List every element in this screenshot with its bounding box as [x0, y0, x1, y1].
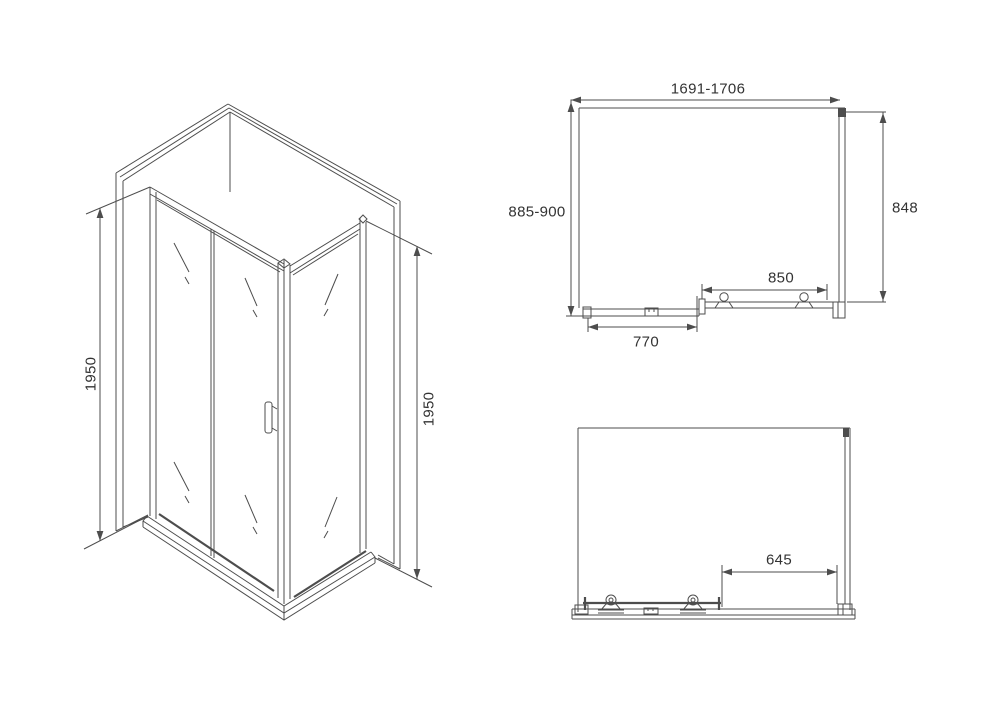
- isometric-view: [84, 104, 432, 620]
- dim-label-iso-right-height: 1950: [421, 391, 438, 428]
- front-dim-645: [722, 565, 837, 607]
- front-base: [572, 604, 855, 619]
- door-handle: [265, 402, 277, 433]
- iso-tray: [143, 514, 375, 620]
- plan-roller-left: [713, 293, 735, 308]
- iso-door-face: [150, 187, 290, 604]
- plan-view: [566, 97, 886, 332]
- plan-roller-right: [793, 293, 815, 308]
- front-view: [572, 428, 855, 619]
- dim-label-iso-left-height: 1950: [83, 356, 100, 393]
- dim-label-plan-width: 1691-1706: [670, 81, 746, 98]
- drawing-canvas: [0, 0, 1000, 707]
- plan-fixed-rail: [583, 307, 699, 318]
- dim-label-plan-side-depth: 848: [891, 200, 919, 217]
- dim-label-plan-depth: 885-900: [507, 204, 566, 221]
- plan-dim-848: [845, 112, 886, 302]
- iso-walls: [116, 104, 400, 569]
- iso-side-face: [290, 215, 367, 553]
- plan-dim-outer: [566, 97, 840, 316]
- dim-label-front-door-offset: 645: [765, 552, 793, 569]
- plan-outline: [579, 108, 846, 308]
- front-outline: [578, 428, 850, 612]
- plan-sliding-rail: [699, 293, 845, 318]
- glass-marks: [174, 243, 338, 538]
- front-sliding-rail: [583, 595, 721, 613]
- plan-dim-770: [588, 296, 697, 332]
- dim-label-plan-fixed-width: 770: [632, 334, 660, 351]
- dim-label-plan-door-width: 850: [767, 270, 795, 287]
- technical-drawing: 1950 1950 1691-1706 885-900 848 850 770 …: [0, 0, 1000, 707]
